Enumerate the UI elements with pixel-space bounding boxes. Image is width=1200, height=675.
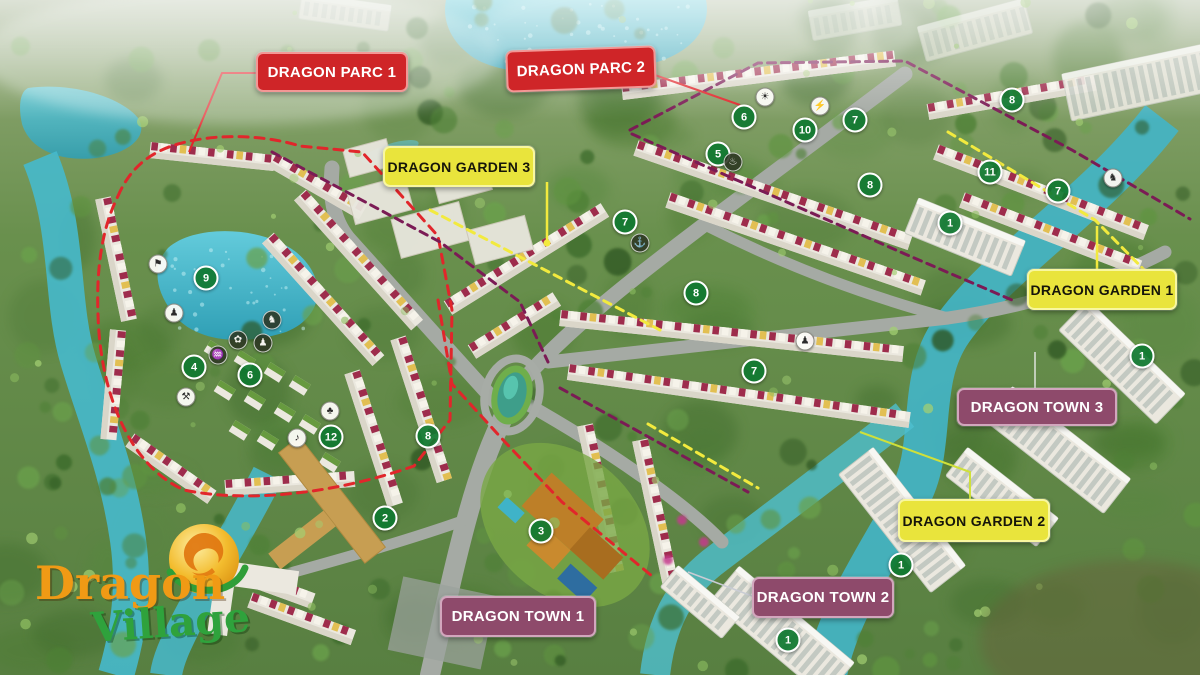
family-icon: ♟: [254, 334, 273, 353]
swan-icon: ♞: [263, 311, 282, 330]
zone-label-dragon-town-1: DRAGON TOWN 1: [440, 596, 596, 637]
unit-count-marker-9: 9: [194, 266, 219, 291]
zone-label-dragon-garden-2: DRAGON GARDEN 2: [898, 499, 1050, 542]
masterplan-image: Dragon Dragon Village Village DRAGON PAR…: [0, 0, 1200, 675]
unit-count-marker-7: 7: [742, 359, 767, 384]
map-annotations: Dragon Dragon Village Village DRAGON PAR…: [0, 0, 1200, 675]
unit-count-marker-6: 6: [238, 363, 263, 388]
golf-icon: ⚑: [149, 255, 168, 274]
unit-count-marker-8: 8: [416, 424, 441, 449]
unit-count-marker-4: 4: [182, 355, 207, 380]
zone-label-dragon-parc-1: DRAGON PARC 1: [256, 52, 408, 92]
runner-icon: ⚡: [811, 97, 830, 116]
zone-label-dragon-parc-2: DRAGON PARC 2: [505, 45, 656, 92]
unit-count-marker-1: 1: [938, 211, 963, 236]
dragon-village-logo: Dragon Dragon Village Village: [30, 502, 280, 672]
picnic-icon: ♨: [724, 153, 743, 172]
unit-count-marker-7: 7: [1046, 179, 1071, 204]
pool-icon: ♒: [209, 346, 228, 365]
zone-label-dragon-town-3: DRAGON TOWN 3: [957, 388, 1117, 426]
unit-count-marker-8: 8: [684, 281, 709, 306]
unit-count-marker-11: 11: [978, 160, 1003, 185]
unit-count-marker-12: 12: [319, 425, 344, 450]
cyclist-icon: ♞: [1104, 169, 1123, 188]
boat-icon: ⚓: [631, 234, 650, 253]
unit-count-marker-10: 10: [793, 118, 818, 143]
unit-count-marker-1: 1: [776, 628, 801, 653]
playground-icon: ✿: [229, 331, 248, 350]
zone-label-dragon-town-2: DRAGON TOWN 2: [752, 577, 894, 618]
unit-count-marker-8: 8: [858, 173, 883, 198]
gym-icon: ⚒: [177, 388, 196, 407]
unit-count-marker-8: 8: [1000, 88, 1025, 113]
yoga-icon: ☀: [756, 88, 775, 107]
park-icon: ♣: [321, 402, 340, 421]
unit-count-marker-7: 7: [843, 108, 868, 133]
unit-count-marker-2: 2: [373, 506, 398, 531]
unit-count-marker-7: 7: [613, 210, 638, 235]
dragon-village-logo-art: Dragon Dragon Village Village: [30, 502, 280, 672]
zone-label-dragon-garden-3: DRAGON GARDEN 3: [383, 146, 535, 187]
unit-count-marker-1: 1: [889, 553, 914, 578]
unit-count-marker-3: 3: [529, 519, 554, 544]
unit-count-marker-1: 1: [1130, 344, 1155, 369]
tennis-icon: ♟: [165, 304, 184, 323]
dance-icon: ♪: [288, 429, 307, 448]
person-icon: ♟: [796, 332, 815, 351]
zone-label-dragon-garden-1: DRAGON GARDEN 1: [1027, 269, 1177, 310]
unit-count-marker-6: 6: [732, 105, 757, 130]
